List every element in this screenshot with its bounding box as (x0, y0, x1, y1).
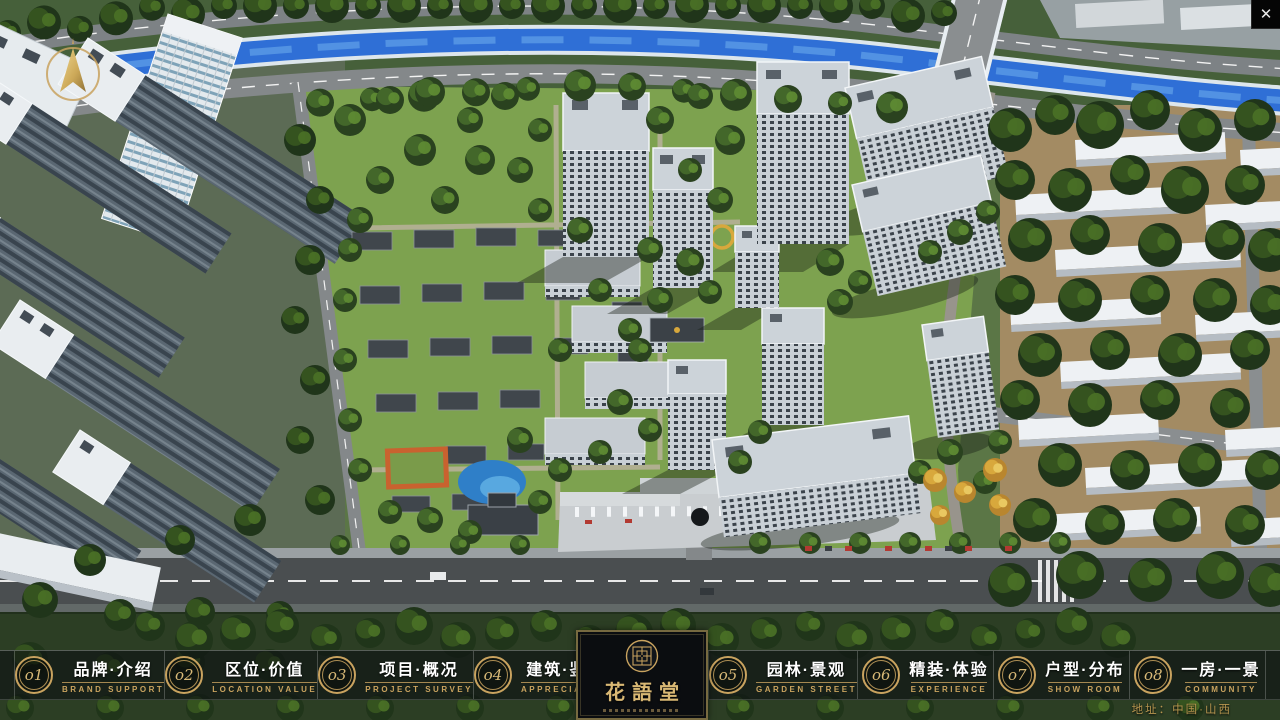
nav-label-zh: 项目·概况 (379, 656, 458, 680)
close-button[interactable]: ✕ (1251, 0, 1280, 29)
nav-label-zh: 精装·体验 (909, 656, 988, 680)
nav-item-garden[interactable]: o5 园林·景观 GARDEN STREET (708, 651, 857, 699)
red-courtyard-building (387, 449, 446, 487)
nav-item-interior[interactable]: o6 精装·体验 EXPERIENCE (857, 651, 993, 699)
nav-label-zh: 区位·价值 (225, 656, 304, 680)
nav-label-zh: 户型·分布 (1045, 656, 1124, 680)
nav-label-en: PROJECT SURVEY (365, 682, 473, 694)
nav-label-zh: 园林·景观 (767, 656, 846, 680)
nav-label-en: SHOW ROOM (1048, 682, 1123, 694)
nav-item-project[interactable]: o3 项目·概况 PROJECT SURVEY (317, 651, 473, 699)
logo-title: 花語堂 (598, 676, 686, 705)
project-logo[interactable]: 花語堂 (576, 630, 708, 720)
aerial-masterplan-render (0, 0, 1280, 720)
nav-label-zh: 一房·一景 (1181, 656, 1260, 680)
nav-label-en: COMMUNITY (1185, 682, 1257, 694)
nav-group-left: o1 品牌·介绍 BRAND SUPPORT o2 区位·价值 LOCATION… (0, 651, 576, 699)
nav-badge-o6: o6 (862, 656, 900, 694)
nav-item-brand[interactable]: o1 品牌·介绍 BRAND SUPPORT (14, 651, 164, 699)
app-window: ✕ o1 品牌·介绍 BRAND SUPPORT o2 区位·价值 LOCATI… (0, 0, 1280, 720)
nav-badge-o8: o8 (1134, 656, 1172, 694)
nav-item-floorplan[interactable]: o7 户型·分布 SHOW ROOM (993, 651, 1129, 699)
nav-badge-o4: o4 (474, 656, 512, 694)
nav-label-en: BRAND SUPPORT (62, 682, 164, 694)
compass-icon (42, 32, 104, 108)
nav-label-zh: 品牌·介绍 (73, 656, 152, 680)
nav-item-view[interactable]: o8 一房·一景 COMMUNITY (1129, 651, 1266, 699)
nav-badge-o5: o5 (709, 656, 747, 694)
nav-label-en: GARDEN STREET (756, 682, 857, 694)
seal-icon (623, 637, 661, 675)
nav-badge-o7: o7 (998, 656, 1036, 694)
clubhouse (650, 318, 704, 342)
close-icon: ✕ (1260, 5, 1273, 23)
logo-caption-microtext (603, 709, 681, 712)
nav-label-en: EXPERIENCE (911, 682, 988, 694)
address-text: 地址：中国·山西 (1132, 701, 1232, 717)
nav-label-en: LOCATION VALUE (212, 682, 317, 694)
nav-badge-o2: o2 (165, 656, 203, 694)
nav-item-location[interactable]: o2 区位·价值 LOCATION VALUE (164, 651, 317, 699)
nav-badge-o1: o1 (15, 656, 53, 694)
nav-group-right: o5 园林·景观 GARDEN STREET o6 精装·体验 EXPERIEN… (708, 651, 1280, 699)
nav-badge-o3: o3 (318, 656, 356, 694)
